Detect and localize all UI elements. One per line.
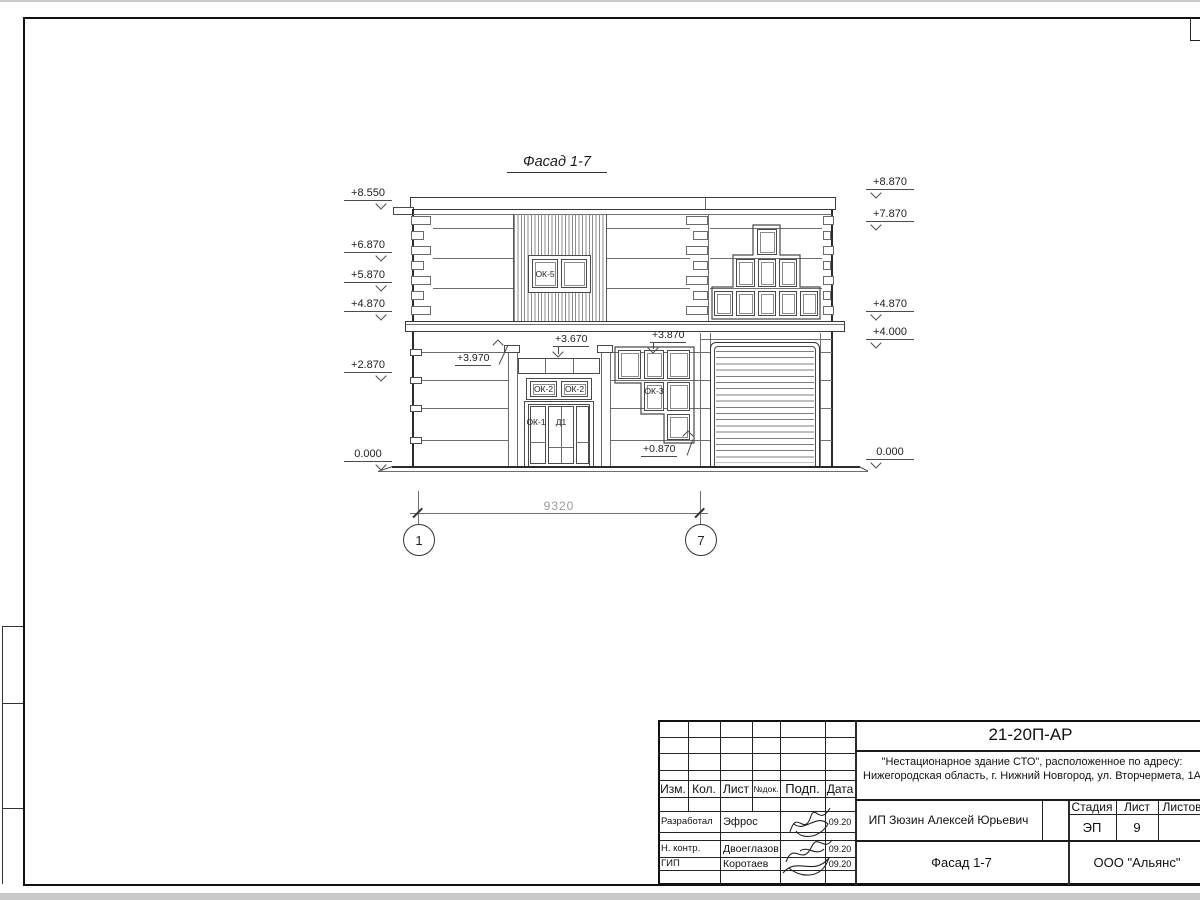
tb-role-developer: Разработал — [661, 811, 719, 832]
elevation-arrow-icon — [870, 187, 881, 198]
wall-divider-2f — [708, 214, 709, 321]
sidelight-rail — [576, 442, 589, 443]
garage-lintel-line — [700, 339, 832, 340]
pyramid-window-cell — [800, 291, 818, 316]
elevation-arrow-icon — [375, 280, 386, 291]
pyramid-window-cell — [779, 259, 797, 287]
window-label-ok3: ОК-3 — [641, 386, 667, 396]
siding-line — [607, 258, 690, 259]
pyramid-window-cell — [757, 229, 777, 255]
elevation-mark: +4.870 — [344, 298, 392, 312]
quoin-stone — [411, 246, 431, 255]
tb-role-ncontrol: Н. контр. — [661, 840, 719, 857]
elevation-mark: +7.870 — [866, 208, 914, 222]
door-rail — [549, 447, 573, 448]
quoin-stone — [686, 246, 708, 255]
quoin-stone — [823, 261, 831, 270]
tb-line-bold — [855, 750, 1200, 752]
door-leaf-divider — [561, 407, 562, 463]
corner-box-line — [1190, 40, 1200, 41]
elevation-mark: +4.870 — [866, 298, 914, 312]
elevation-mark: 0.000 — [866, 446, 914, 460]
siding-line — [607, 288, 690, 289]
pyramid-window-cell — [714, 291, 733, 316]
quoin-stone — [411, 261, 424, 270]
drawing-view-title: Фасад 1-7 — [507, 154, 607, 173]
filing-strip-line — [2, 808, 23, 809]
band-line — [413, 440, 508, 441]
pilaster-tick — [820, 380, 832, 381]
portal-pilaster-line — [610, 353, 611, 468]
band-line — [610, 380, 700, 381]
annotation-mark: +3.970 — [455, 353, 491, 366]
quoin-stone — [823, 246, 834, 255]
quoin-stone — [693, 231, 708, 240]
axis-bubble-7: 7 — [685, 524, 717, 556]
window-label-ok2: ОК-2 — [530, 384, 557, 394]
tb-name-developer: Эфрос — [723, 811, 779, 832]
siding-line — [710, 288, 822, 289]
pyramid-window-cell — [779, 291, 797, 316]
elevation-arrow-icon — [375, 309, 386, 320]
annotation-mark: +3.870 — [650, 330, 686, 343]
window-ok5-pane — [561, 259, 587, 288]
transom-divider — [545, 359, 546, 373]
pilaster-tick — [700, 352, 710, 353]
band-line — [413, 408, 508, 409]
window-ok3-cell — [644, 350, 664, 379]
band-tick — [410, 377, 422, 384]
tb-sheets-label: Листов — [1158, 799, 1200, 814]
drawing-viewer: Фасад 1-7 ОК-5 — [0, 0, 1200, 900]
quoin-stack-right — [823, 216, 834, 319]
tb-line — [658, 832, 855, 833]
tb-sheet-value: 9 — [1116, 814, 1158, 840]
tb-stage-label: Стадия — [1068, 799, 1116, 814]
tb-date-gip: 09.20 — [825, 857, 855, 870]
tb-project-line2: Нижегородская область, г. Нижний Новгоро… — [858, 768, 1200, 783]
quoin-stone — [411, 231, 424, 240]
sidelight-right — [576, 406, 589, 464]
tb-line — [658, 753, 855, 754]
garage-door-slats — [716, 351, 814, 463]
window-ok3-cell — [667, 382, 690, 411]
sidelight-rail — [530, 442, 546, 443]
band-tick — [410, 349, 422, 356]
tb-name-ncontrol: Двоеглазов — [723, 840, 779, 857]
window-label-ok5: ОК-5 — [531, 269, 559, 279]
window-label-ok1: ОК-1 — [524, 417, 548, 427]
tb-stage-value: ЭП — [1068, 814, 1116, 840]
parapet-band — [410, 197, 836, 210]
transom-divider — [573, 359, 574, 373]
tb-doc-number: 21-20П-АР — [855, 720, 1200, 750]
band-tick — [410, 437, 422, 444]
tb-line — [780, 720, 781, 885]
elevation-mark: +4.000 — [866, 326, 914, 340]
tb-sheet-label: Лист — [1116, 799, 1158, 814]
dimension-line — [410, 513, 708, 514]
quoin-stone — [693, 291, 708, 300]
slab-band-line — [406, 324, 844, 325]
band-tick — [410, 405, 422, 412]
tb-company: ООО "Альянс" — [1068, 840, 1200, 885]
quoin-stack-center — [686, 216, 708, 319]
quoin-stone — [686, 276, 708, 285]
siding-line — [433, 228, 513, 229]
transom-window — [518, 358, 600, 374]
extension-line — [700, 491, 701, 524]
siding-line — [607, 228, 690, 229]
drawing-sheet: Фасад 1-7 ОК-5 — [0, 2, 1200, 893]
tb-line — [658, 797, 855, 798]
pilaster-tick — [820, 440, 832, 441]
elevation-mark: +2.870 — [344, 359, 392, 373]
siding-line — [433, 258, 513, 259]
tb-header-data: Дата — [825, 780, 855, 797]
elevation-arrow-icon — [375, 370, 386, 381]
elevation-arrow-icon — [375, 198, 386, 209]
quoin-stone — [823, 276, 834, 285]
elevation-arrow-icon — [870, 337, 881, 348]
elevation-mark: +8.550 — [344, 187, 392, 201]
filing-strip-line — [2, 626, 3, 884]
wall-top-line — [413, 214, 832, 215]
frame-top — [23, 17, 1200, 19]
pyramid-window-cell — [758, 259, 776, 287]
ground-line-lower — [378, 471, 868, 472]
pilaster-tick — [820, 408, 832, 409]
pyramid-window-cell — [758, 291, 776, 316]
window-ok3-cell — [618, 350, 641, 379]
extension-line — [418, 491, 419, 524]
roof-ledge-left — [393, 207, 414, 215]
quoin-stone — [411, 216, 431, 225]
elevation-mark: +5.870 — [344, 269, 392, 283]
garage-pilaster-line — [820, 333, 821, 468]
window-label-ok2: ОК-2 — [561, 384, 588, 394]
tb-date-ncontrol: 09.20 — [825, 840, 855, 857]
elevation-arrow-icon — [870, 219, 881, 230]
tb-role-gip: ГИП — [661, 857, 719, 870]
elevation-arrow-icon — [870, 457, 881, 468]
elevation-arrow-icon — [375, 250, 386, 261]
tb-drawing-title: Фасад 1-7 — [855, 840, 1068, 885]
tb-header-kol: Кол. — [688, 780, 720, 797]
quoin-stone — [823, 306, 834, 315]
tb-client: ИП Зюзин Алексей Юрьевич — [855, 799, 1042, 840]
pyramid-window-cell — [736, 291, 755, 316]
tb-line — [1042, 799, 1043, 840]
tb-line — [658, 770, 855, 771]
quoin-stack-left — [411, 216, 431, 319]
frame-left — [23, 17, 25, 885]
quoin-stone — [686, 306, 708, 315]
tb-line — [658, 737, 855, 738]
tb-header-podp: Подп. — [780, 780, 825, 797]
quoin-stone — [823, 216, 834, 225]
filing-strip-line — [2, 703, 23, 704]
tb-header-izm: Изм. — [658, 780, 688, 797]
door-label-d1: Д1 — [550, 417, 572, 427]
sidelight-ok1 — [530, 406, 546, 464]
tb-line — [658, 870, 855, 871]
annotation-arrow-icon — [492, 339, 503, 350]
quoin-stone — [686, 216, 708, 225]
quoin-stone — [823, 231, 831, 240]
portal-pilaster-cap — [597, 345, 613, 353]
quoin-stone — [411, 276, 431, 285]
filing-strip-line — [2, 626, 23, 627]
elevation-mark: +8.870 — [866, 176, 914, 190]
siding-line — [433, 288, 513, 289]
window-ok3-cell — [667, 350, 690, 379]
quoin-stone — [823, 291, 831, 300]
tb-line — [720, 720, 721, 885]
elevation-arrow-icon — [870, 309, 881, 320]
annotation-arrow-icon — [552, 346, 563, 357]
slab-band — [405, 321, 845, 332]
quoin-stone — [411, 306, 431, 315]
parapet-divider — [705, 198, 706, 209]
tb-project-line1: "Нестационарное здание СТО", расположенн… — [858, 754, 1200, 769]
ground-line — [392, 466, 860, 468]
tb-date-developer: 09.20 — [825, 811, 855, 832]
quoin-stone — [693, 261, 708, 270]
tb-header-list: Лист — [720, 780, 752, 797]
annotation-mark: +0.870 — [641, 444, 677, 457]
elevation-mark: 0.000 — [344, 448, 392, 462]
portal-pilaster-line — [508, 353, 509, 468]
portal-pilaster-line — [601, 353, 602, 468]
pyramid-window-cell — [736, 259, 755, 287]
pilaster-tick — [700, 440, 710, 441]
quoin-stone — [411, 291, 424, 300]
elevation-mark: +6.870 — [344, 239, 392, 253]
pilaster-tick — [700, 408, 710, 409]
axis-bubble-1: 1 — [403, 524, 435, 556]
garage-pilaster-line — [700, 333, 701, 468]
band-line — [413, 380, 508, 381]
tb-name-gip: Коротаев — [723, 857, 779, 870]
dimension-text: 9320 — [519, 499, 599, 513]
corner-box-line — [1190, 19, 1191, 40]
tb-header-ndok: №док. — [752, 780, 780, 797]
pilaster-tick — [700, 380, 710, 381]
pilaster-tick — [820, 352, 832, 353]
